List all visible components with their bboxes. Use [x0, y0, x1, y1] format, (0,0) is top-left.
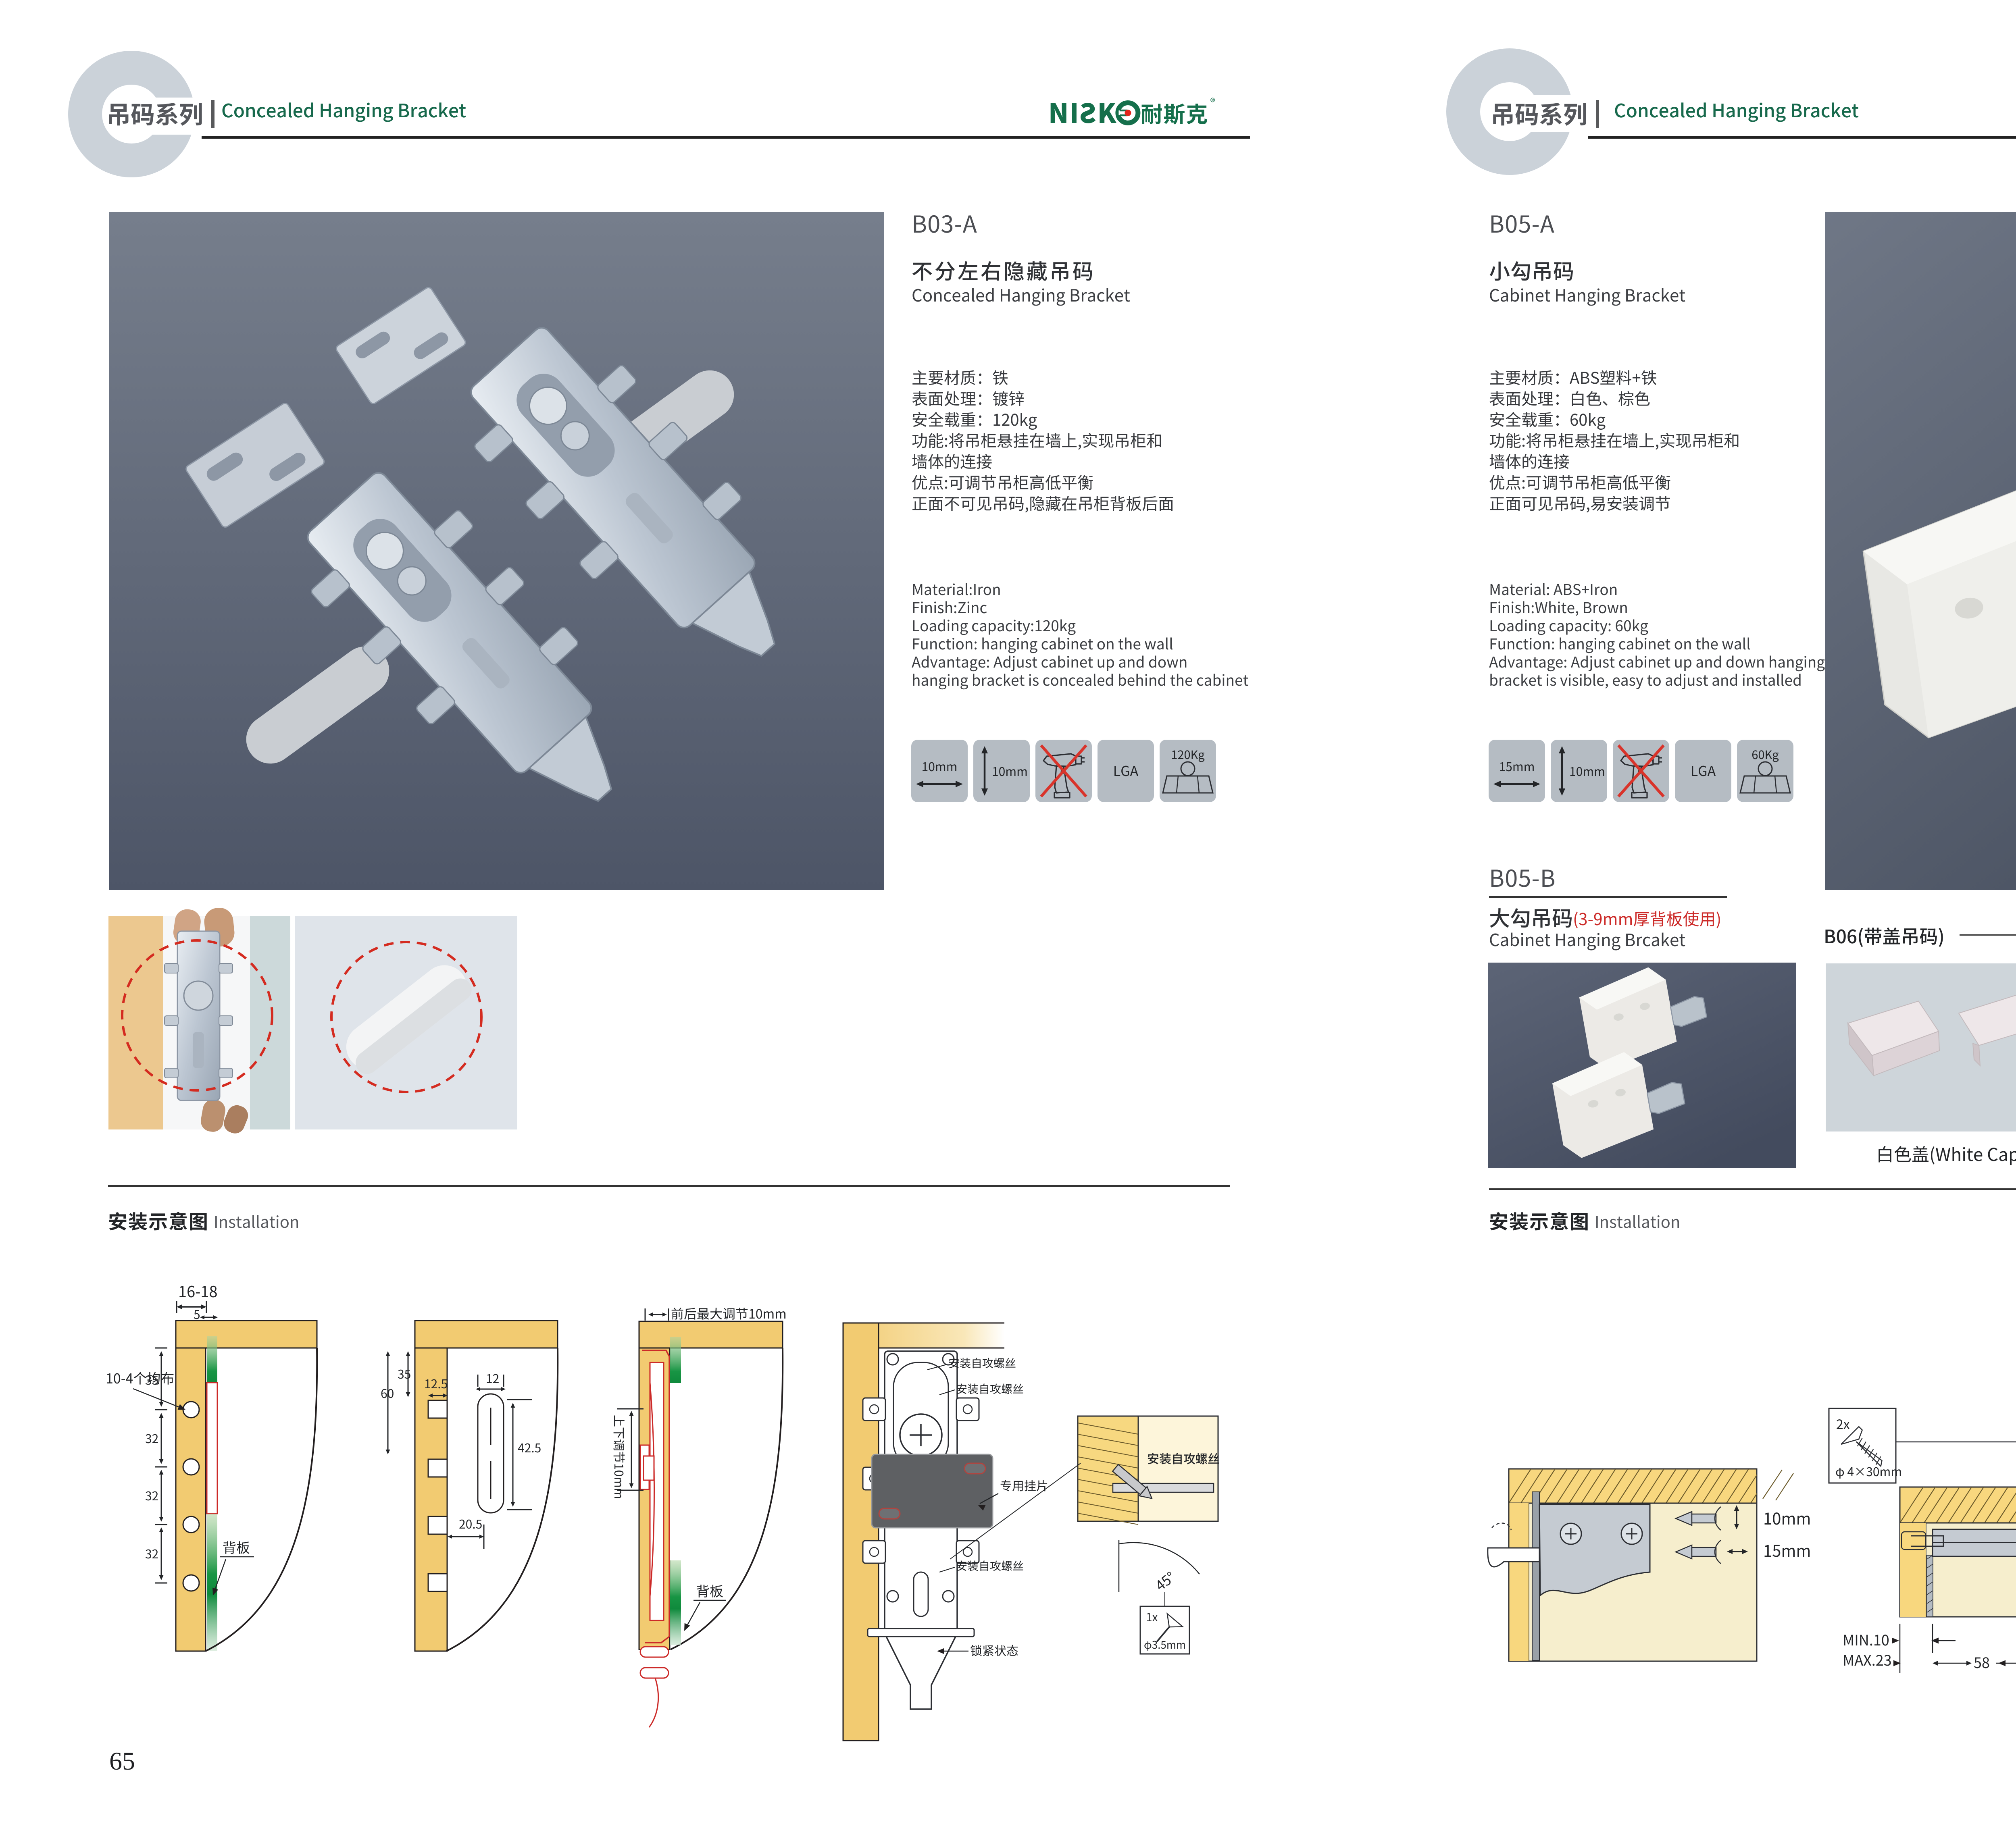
svg-text:65: 65: [109, 1747, 135, 1775]
